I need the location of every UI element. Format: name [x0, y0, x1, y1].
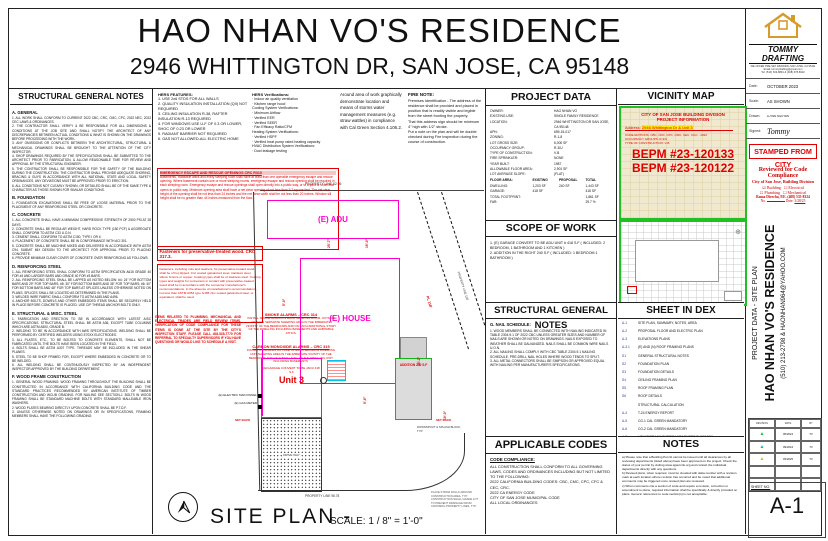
drawing-sheet: HAO NHAN VO'S RESIDENCE 2946 WHITTINGTON… — [0, 0, 828, 541]
sheet-number: S4 — [622, 378, 638, 383]
parcel-map: ⊕ — [619, 220, 747, 306]
driveway: DRIVE WAY — [261, 418, 322, 492]
sheet-number: A-1 — [622, 321, 638, 326]
revision-col-header: REVISION — [749, 419, 775, 428]
project-data-value: (FLAT) — [554, 172, 612, 177]
notes-section-title: E. STRUCTURAL & MISC. STEEL — [12, 311, 151, 316]
sheet-number: A-5 — [622, 419, 638, 424]
reviewed-stamp: Reviewed for Code Compliance City of San… — [746, 167, 820, 203]
sheet-number: S2 — [622, 362, 638, 367]
applicable-codes-header: APPLICABLE CODES — [486, 436, 616, 454]
utility-labels: (E) ELECTRIC MAIN PANEL (E) GAS METER — [199, 393, 257, 405]
dimension-marker: 15'-2" — [417, 357, 421, 366]
signed-row: Signed: Tommy — [746, 123, 820, 139]
reviewed-line2: City of San Jose, Building Division — [746, 179, 820, 184]
sheet-number: A-1 — [751, 493, 823, 519]
project-data-header: PROJECT DATA — [486, 90, 616, 106]
property-line-bottom-label: PROPERTY LINE 98.78 — [305, 494, 339, 498]
brand-tel: Tel: (510) 633-8891 & (408) 678-8622 — [746, 71, 820, 74]
col-divider-1 — [152, 88, 153, 534]
revision-triangle-icon: ▲ — [749, 428, 775, 441]
revision-date: 05/2024 — [775, 428, 801, 441]
sheet-index-row: S6 ROOF DETAILS — [622, 394, 742, 399]
address-unit: & Unit 3 — [678, 125, 692, 130]
date-label: Date: — [749, 84, 767, 88]
notes-section-body: 1. GENERAL WOOD FRAMING: WOOD FRAMING TH… — [12, 380, 151, 418]
fasteners-note-title-box: Fasteners for preservative-treated wood.… — [157, 246, 263, 261]
notes-section-title: A. GENERAL — [12, 110, 151, 115]
hatched-area — [400, 337, 427, 359]
date-col-header: DATE — [775, 419, 801, 428]
project-data-table: OWNER: HAO NHAN VO EXISTING USE: SINGLE … — [490, 109, 612, 177]
tommy-drafting-logo-icon — [761, 11, 805, 39]
sheet-title: SITE PLAN, SUMMARY, NOTES, AREA — [638, 321, 697, 326]
sheet-index-row: A-4 T-24 ENERGY REPORT — [622, 411, 742, 416]
sheet-title: CG-2 CAL GREEN MANDATORY — [638, 427, 687, 432]
project-data-label: LOT AVERAGE SLOPE: — [490, 172, 526, 177]
notes-section: B. FOUNDATION 1. FOUNDATION EXCAVATIONS … — [12, 195, 151, 209]
fa-total: 29.7 % — [585, 200, 612, 206]
callout-circle — [320, 377, 327, 384]
code-compliance-body: ALL CONSTRUCTION SHALL CONFORM TO ALL GO… — [490, 464, 612, 506]
page-subtitle: 2946 WHITTINGTON DR, SAN JOSE, CA 95148 — [14, 53, 745, 80]
sheet-number: A-3 — [622, 337, 638, 342]
sheet-number: S5 — [622, 386, 638, 391]
scale-label: Scale: — [749, 99, 767, 103]
notes-section-title: B. FOUNDATION — [12, 195, 151, 200]
electric-panel-symbol — [258, 394, 262, 398]
sheet-index-row: STRUCTURAL CALCULATION — [622, 403, 742, 408]
notes-section: A. GENERAL 1. ALL WORK SHALL CONFORM TO … — [12, 110, 151, 192]
revision-by: TV — [801, 441, 821, 454]
driveway-label: DRIVE WAY — [282, 453, 301, 457]
reviewed-title: Reviewed for Code Compliance — [746, 167, 820, 179]
sheet-index-row: S4 CEILING FRAMING PLAN — [622, 378, 742, 383]
revision-by: TV — [801, 428, 821, 441]
stamp-date-label: Date: — [786, 199, 794, 203]
vertical-contact-info: (510) 213-2798 & HAONHAN964@YAHOO.COM — [781, 212, 787, 414]
sheet-index-row: A-3 ELEVATIONS PLANS — [622, 337, 742, 342]
vertical-project-name: HAO NHAN VO'S RESIDENCE — [763, 212, 777, 414]
sheet-index-row: A-2 PROPOSAL FLOOR AND ELECTRIC PLAN — [622, 329, 742, 334]
structural-right-body: G. NAIL SCHEDULE: 1. WOOD MEMBERS SHALL … — [490, 322, 612, 368]
vicinity-line2: PROJECT INFORMATION — [621, 117, 745, 122]
revision-table: REVISION DATE BY ▲ 05/2024 TV ▲ 09/2024 … — [748, 418, 822, 492]
sheet-index-row: S5 ROOF FRAMING PLAN — [622, 386, 742, 391]
page-title: HAO NHAN VO'S RESIDENCE — [14, 12, 745, 50]
no-label: No. — [761, 199, 766, 203]
vertical-title-block: PROJECT DATA - SITE PLAN HAO NHAN VO'S R… — [746, 212, 822, 414]
sheet-index-row: A-6 CG-2 CAL GREEN MANDATORY — [622, 427, 742, 432]
notes-section: C. CONCRETE 1. ALL CONCRETE SHALL HAVE A… — [12, 212, 151, 260]
notes-section-body: 1. FABRICATION AND ERECTION TO BE IN ACC… — [12, 317, 151, 372]
notes-section: F. WOOD FRAME CONSTRUCTION 1. GENERAL WO… — [12, 374, 151, 418]
sheet-title: FOUNDATION PLAN — [638, 362, 669, 367]
left-notes-header: STRUCTURAL GENERAL NOTES — [10, 90, 152, 105]
project-data-row: LOCATION: 2946 WHITTINGTON DR SAN JOSE, … — [490, 120, 612, 131]
sheet-title: ROOF DETAILS — [638, 394, 662, 399]
fa-existing — [532, 200, 559, 206]
trades-note: ITEMS RELATED TO PLUMBING, MECHANICAL AN… — [155, 315, 241, 345]
sheet-number: A-3.1 — [622, 345, 638, 350]
parcel-map-street-inner — [655, 252, 697, 280]
sheet-header: HAO NHAN VO'S RESIDENCE 2946 WHITTINGTON… — [14, 12, 745, 80]
sheet-title: FOUNDATION DETAILS — [638, 370, 674, 375]
notes-section-title: C. CONCRETE — [12, 212, 151, 217]
unit3-label: Unit 3 — [262, 375, 321, 385]
gas-meter-symbol — [258, 405, 262, 409]
revision-triangle-icon: ▲ — [749, 441, 775, 454]
vertical-sheet-description: PROJECT DATA - SITE PLAN — [752, 212, 759, 414]
floor-area-rows: DWELLING: 1,203 SF 240 SF 1,443 SF GARAG… — [490, 184, 612, 206]
notes-body: a) Please note that a Building Permit ca… — [622, 455, 742, 496]
structural-right-header: STRUCTURAL GENERAL NOTES — [486, 302, 616, 319]
applicable-codes-body: CODE COMPLIANCE: ALL CONSTRUCTION SHALL … — [490, 457, 612, 506]
notes-section-title: F. WOOD FRAME CONSTRUCTION — [12, 374, 151, 379]
emergency-escape-body: Basements, Habitable attics and every sl… — [160, 175, 336, 200]
property-line-right-dashed-2 — [441, 192, 485, 335]
electric-panel-label: (E) ELECTRIC MAIN PANEL — [199, 393, 257, 397]
nail-schedule-body: 1. WOOD MEMBERS SHALL BE CONNECTED WITH … — [490, 329, 612, 368]
fa-proposal — [559, 200, 586, 206]
gas-meter-label: (E) GAS METER — [199, 401, 257, 405]
date-value: OCTOBER 2023 — [767, 84, 798, 89]
dimension-marker: 10'-0" — [443, 411, 447, 420]
sheet-title: (E) AND (N) ROOF FRAMING PLANS — [638, 345, 694, 350]
bepm-number-2: BEPM #23-120122 — [621, 161, 745, 175]
adu-building: (E) ADU — [267, 200, 399, 239]
sheet-number: A-4 — [622, 411, 638, 416]
code-compliance-title: CODE COMPLIANCE: — [490, 457, 612, 462]
plan-scale: SCALE: 1 / 8" = 1'-0" — [330, 516, 423, 527]
vicinity-map: CITY OF SAN JOSE BUILDING DIVISION PROJE… — [619, 106, 747, 220]
sheet-number: A-6 — [622, 427, 638, 432]
vicinity-map-header: VICINITY MAP — [618, 90, 744, 105]
pl-right-short-label: PL 118' — [425, 296, 433, 309]
dimension-marker: 5'-6" — [363, 397, 367, 404]
bepm-number-1: BEPM #23-120133 — [621, 147, 745, 161]
notes-section: E. STRUCTURAL & MISC. STEEL 1. FABRICATI… — [12, 311, 151, 372]
project-data-label: LOCATION: — [490, 120, 508, 131]
date-row: Date: OCTOBER 2023 — [746, 78, 820, 93]
subject-lot-marker — [627, 286, 637, 294]
sheet-index-header: SHEET IN DEX — [618, 302, 744, 319]
dimension-marker: 25'-7" — [327, 239, 331, 248]
water-heater-note — [327, 360, 346, 381]
garage-unit3: (E)GARAGE CONVERT TO BE JADU 418 S.F Uni… — [261, 358, 322, 418]
sheet-number-box: SHEET NO. A-1 — [748, 482, 826, 538]
scope-body: 1. (E) GARAGE CONVERT TO BE ADU UNIT # 4… — [490, 241, 612, 260]
notes-section-body: 1. ALL REINFORCING STEEL SHALL CONFORM T… — [12, 270, 151, 308]
addition-area: ADDITION 240 S.F — [395, 358, 432, 420]
adu-label: (E) ADU — [318, 215, 348, 224]
sheet-index-row: S2 FOUNDATION PLAN — [622, 362, 742, 367]
signature: Tommy — [767, 127, 790, 136]
drawn-value: LUYEN NGUYEN — [767, 114, 789, 118]
notes-section-body: 1. FOUNDATION EXCAVATIONS SHALL BE FREE … — [12, 201, 151, 209]
sheet-title: GENERAL STRUCTURAL NOTES — [638, 354, 689, 359]
stamp-date-value: 3/28/25 — [794, 199, 805, 203]
vicinity-construction-type: TYPE OF CONSTRUCTION: V-B — [625, 141, 745, 145]
revision-triangle-icon: ▲ — [749, 453, 775, 466]
sheet-title: CEILING FRAMING PLAN — [638, 378, 677, 383]
north-arrow-icon — [168, 492, 198, 522]
sheet-index: A-1 SITE PLAN, SUMMARY, NOTES, AREA A-2 … — [622, 321, 742, 443]
by-col-header: BY — [801, 419, 821, 428]
sheet-title: ELEVATIONS PLANS — [638, 337, 670, 342]
sheet-number — [622, 403, 638, 408]
house-label: (E) HOUSE — [301, 314, 399, 323]
sheet-title: STRUCTURAL CALCULATION — [638, 403, 684, 408]
property-line-right-dashed-1 — [417, 192, 469, 349]
dimension-marker: 19'-0" — [365, 239, 369, 248]
sheet-title: T-24 ENERGY REPORT — [638, 411, 674, 416]
left-notes: A. GENERAL 1. ALL WORK SHALL CONFORM TO … — [12, 107, 151, 531]
logo-block: TOMMY DRAFTING WE OFFER PRE-SET DRAWING … — [746, 8, 820, 74]
compass-icon: ⊕ — [735, 228, 741, 236]
revision-date: 03/2025 — [775, 453, 801, 466]
sheet-index-row: A-3.1 (E) AND (N) ROOF FRAMING PLANS — [622, 345, 742, 350]
setback-label-left: SET BACK — [235, 418, 250, 422]
sheet-no-label: SHEET NO. — [751, 485, 823, 489]
brand-name: TOMMY DRAFTING — [749, 44, 817, 64]
dimension-marker: 5'-0" — [282, 299, 286, 306]
scale-row: Scale: AS SHOWN — [746, 93, 820, 108]
col-divider-3 — [616, 88, 617, 534]
notes-section-body: 1. ALL WORK SHALL CONFORM TO CURRENT 202… — [12, 116, 151, 192]
sheet-title: CG-1 CAL GREEN MANDATORY — [638, 419, 687, 424]
site-plan-drawing: PROPERTY LINE 62.96 PL 118' PROPERTY LIN… — [155, 88, 485, 535]
floor-area-table: FLOOR AREA: EXISTING PROPOSAL TOTAL DWEL… — [490, 178, 612, 206]
sheet-index-row: A-1 SITE PLAN, SUMMARY, NOTES, AREA — [622, 321, 742, 326]
downspout-label: DOWNSPOUT & SPLASH BLOCK, TYP. — [417, 425, 465, 433]
project-data-value: 2946 WHITTINGTON DR SAN JOSE, CA 95148 — [554, 120, 612, 131]
reviewed-no-date: No. Date: 3/28/25 — [746, 199, 820, 203]
address-value: 2946 Whittington Dr — [642, 125, 677, 130]
signed-label: Signed: — [749, 129, 767, 133]
sheet-index-row: A-5 CG-1 CAL GREEN MANDATORY — [622, 419, 742, 424]
stamped-from-city: STAMPED FROM CITY — [749, 144, 817, 159]
address-label: Address: — [625, 125, 641, 130]
notes-section-title: D. REINFORCING STEEL — [12, 264, 151, 269]
fasteners-note-body: Fasteners, including nuts and washers, f… — [160, 267, 261, 300]
addition-label: ADDITION 240 S.F — [396, 363, 431, 367]
sheet-number: A-2 — [622, 329, 638, 334]
sheet-number: S1 — [622, 354, 638, 359]
scale-value: AS SHOWN — [767, 99, 790, 104]
sheet-number: S6 — [622, 394, 638, 399]
project-data-row: LOT AVERAGE SLOPE: (FLAT) — [490, 172, 612, 177]
parcel-map-legend — [724, 291, 742, 301]
drawn-row: Drawn: LUYEN NGUYEN — [746, 108, 820, 123]
notes-header: NOTES — [618, 436, 744, 453]
sheet-title: ROOF FRAMING PLAN — [638, 386, 673, 391]
revision-date: 09/2024 — [775, 441, 801, 454]
vicinity-address: Address: 2946 Whittington Dr & Unit 3 — [625, 125, 733, 131]
fasteners-note-title: Fasteners for preservative-treated wood.… — [160, 249, 261, 259]
sheet-number: S3 — [622, 370, 638, 375]
nail-schedule-title: G. NAIL SCHEDULE: — [490, 322, 612, 327]
straw-roll-note: PLACE STRAW ROLLS AROUND CONSTRUCTION AR… — [431, 491, 481, 509]
notes-section: D. REINFORCING STEEL 1. ALL REINFORCING … — [12, 264, 151, 308]
fa-row-label: FAR: — [490, 200, 532, 206]
sheet-index-row: S1 GENERAL STRUCTURAL NOTES — [622, 354, 742, 359]
floor-area-row: FAR: 29.7 % — [490, 200, 612, 206]
notes-section-body: 1. ALL CONCRETE SHALL HAVE A MINIMUM COM… — [12, 218, 151, 260]
garage-note: (E)GARAGE CONVERT TO BE JADU 418 S.F — [262, 367, 321, 375]
sheet-title: PROPOSAL FLOOR AND ELECTRIC PLAN — [638, 329, 703, 334]
drawn-label: Drawn: — [749, 114, 767, 118]
scope-header: SCOPE OF WORK — [486, 220, 616, 237]
revision-by: TV — [801, 453, 821, 466]
sheet-index-row: S3 FOUNDATION DETAILS — [622, 370, 742, 375]
